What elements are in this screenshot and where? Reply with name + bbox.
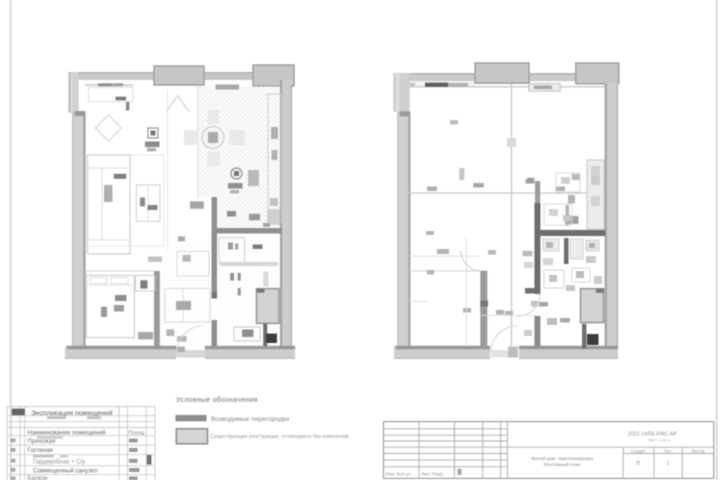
svg-text:1: 1	[667, 461, 670, 467]
svg-text:Наименование помещений: Наименование помещений	[28, 429, 106, 436]
svg-text:Существующие конструкции, оста: Существующие конструкции, остающиеся без…	[210, 433, 349, 440]
svg-text:лист 1 из 1: лист 1 из 1	[648, 438, 671, 443]
svg-text:Условные обозначения: Условные обозначения	[176, 396, 258, 404]
svg-text:Гардеробная + С/у: Гардеробная + С/у	[33, 460, 85, 466]
svg-text:Экспликация помещений: Экспликация помещений	[31, 409, 113, 417]
svg-text:Гостиная: Гостиная	[28, 448, 53, 454]
svg-text:Жилой дом, перепланировка: Жилой дом, перепланировка	[531, 455, 594, 461]
svg-text:Возводимые перегородки: Возводимые перегородки	[211, 416, 290, 423]
svg-text:Лист Подп.: Лист Подп.	[421, 472, 444, 477]
svg-text:Совмещенный санузел: Совмещенный санузел	[33, 467, 98, 474]
svg-text:Стадия: Стадия	[631, 448, 645, 453]
svg-text:Прихожая: Прихожая	[28, 439, 56, 445]
svg-text:Балкон: Балкон	[28, 476, 48, 480]
svg-text:Площ.: Площ.	[129, 430, 147, 436]
svg-text:Лист: Лист	[663, 448, 672, 453]
svg-text:П: П	[636, 461, 640, 467]
svg-text:Листов: Листов	[691, 448, 705, 453]
svg-text:Монтажный план: Монтажный план	[544, 461, 581, 467]
svg-text:Изм. Кол.уч.: Изм. Кол.уч.	[386, 472, 412, 477]
